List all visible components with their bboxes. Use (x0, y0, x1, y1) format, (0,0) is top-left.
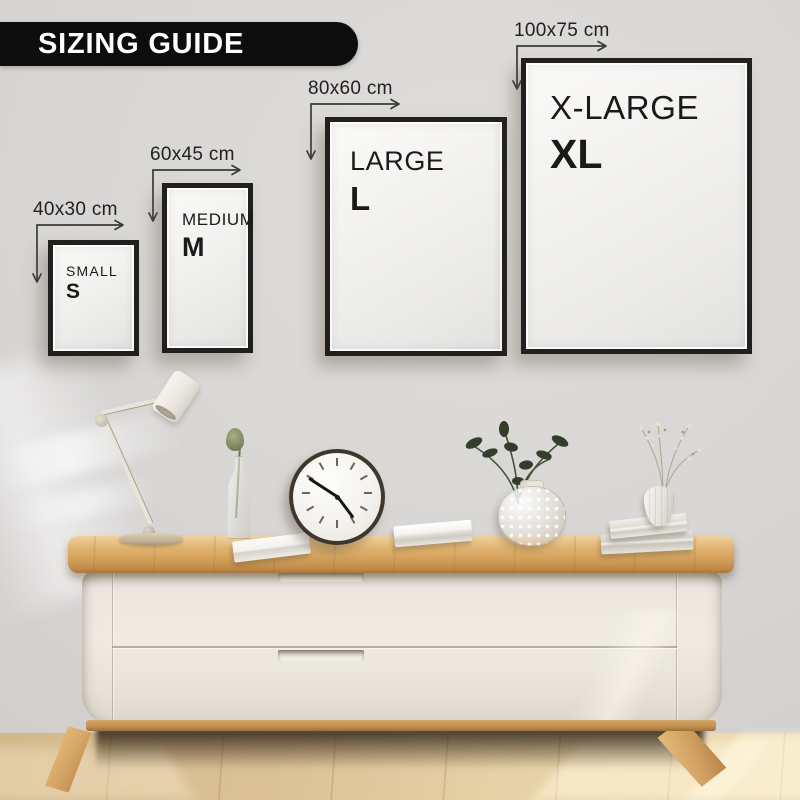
size-name-label: LARGE (350, 146, 502, 177)
clock-minute-hand (308, 477, 338, 498)
lamp-head (151, 369, 202, 425)
clock-tick (319, 516, 325, 524)
poster-frame-small: SMALL S (48, 240, 139, 356)
size-letter-label: M (182, 232, 248, 263)
clock-tick (350, 462, 356, 470)
poster-print-small: SMALL S (53, 245, 134, 304)
bubble-glass-vase (498, 486, 566, 546)
lamp-arm (103, 420, 153, 524)
dried-flower-sprigs (613, 416, 717, 496)
size-letter-label: S (66, 280, 134, 304)
clock-tick (360, 506, 368, 512)
sizing-guide-scene: SIZING GUIDE 40x30 cm SMALL S 60x45 cm M… (0, 0, 800, 800)
clock-tick (306, 506, 314, 512)
cabinet-shadow (96, 727, 704, 769)
wall-clock (289, 449, 385, 545)
clock-tick (364, 492, 372, 494)
size-letter-label: L (350, 180, 502, 218)
drawer-handle-top (278, 573, 364, 582)
sunlight-patch (552, 610, 722, 724)
lamp-base (119, 533, 183, 545)
clock-tick (302, 492, 310, 494)
clock-tick (319, 462, 325, 470)
poster-print-xlarge: X-LARGE XL (526, 63, 747, 178)
clock-tick (336, 458, 338, 466)
clock-center-dot (335, 495, 340, 500)
clock-tick (336, 520, 338, 528)
poster-frame-xlarge: X-LARGE XL (521, 58, 752, 354)
sideboard-cabinet (82, 570, 722, 724)
poster-frame-medium: MEDIUM M (162, 183, 253, 353)
poster-print-medium: MEDIUM M (167, 188, 248, 263)
page-title: SIZING GUIDE (0, 28, 244, 61)
clock-tick (360, 475, 368, 481)
poster-frame-large: LARGE L (325, 117, 507, 356)
sideboard-base-strip (86, 720, 716, 731)
size-name-label: MEDIUM (182, 210, 248, 230)
size-name-label: SMALL (66, 263, 134, 279)
size-name-label: X-LARGE (550, 89, 747, 127)
size-letter-label: XL (550, 131, 747, 178)
lamp-joint (95, 414, 108, 427)
seed-head-flower (226, 428, 244, 451)
drawer-handle-bottom (278, 650, 364, 661)
sizing-guide-banner: SIZING GUIDE (0, 22, 358, 66)
poster-print-large: LARGE L (330, 122, 502, 218)
